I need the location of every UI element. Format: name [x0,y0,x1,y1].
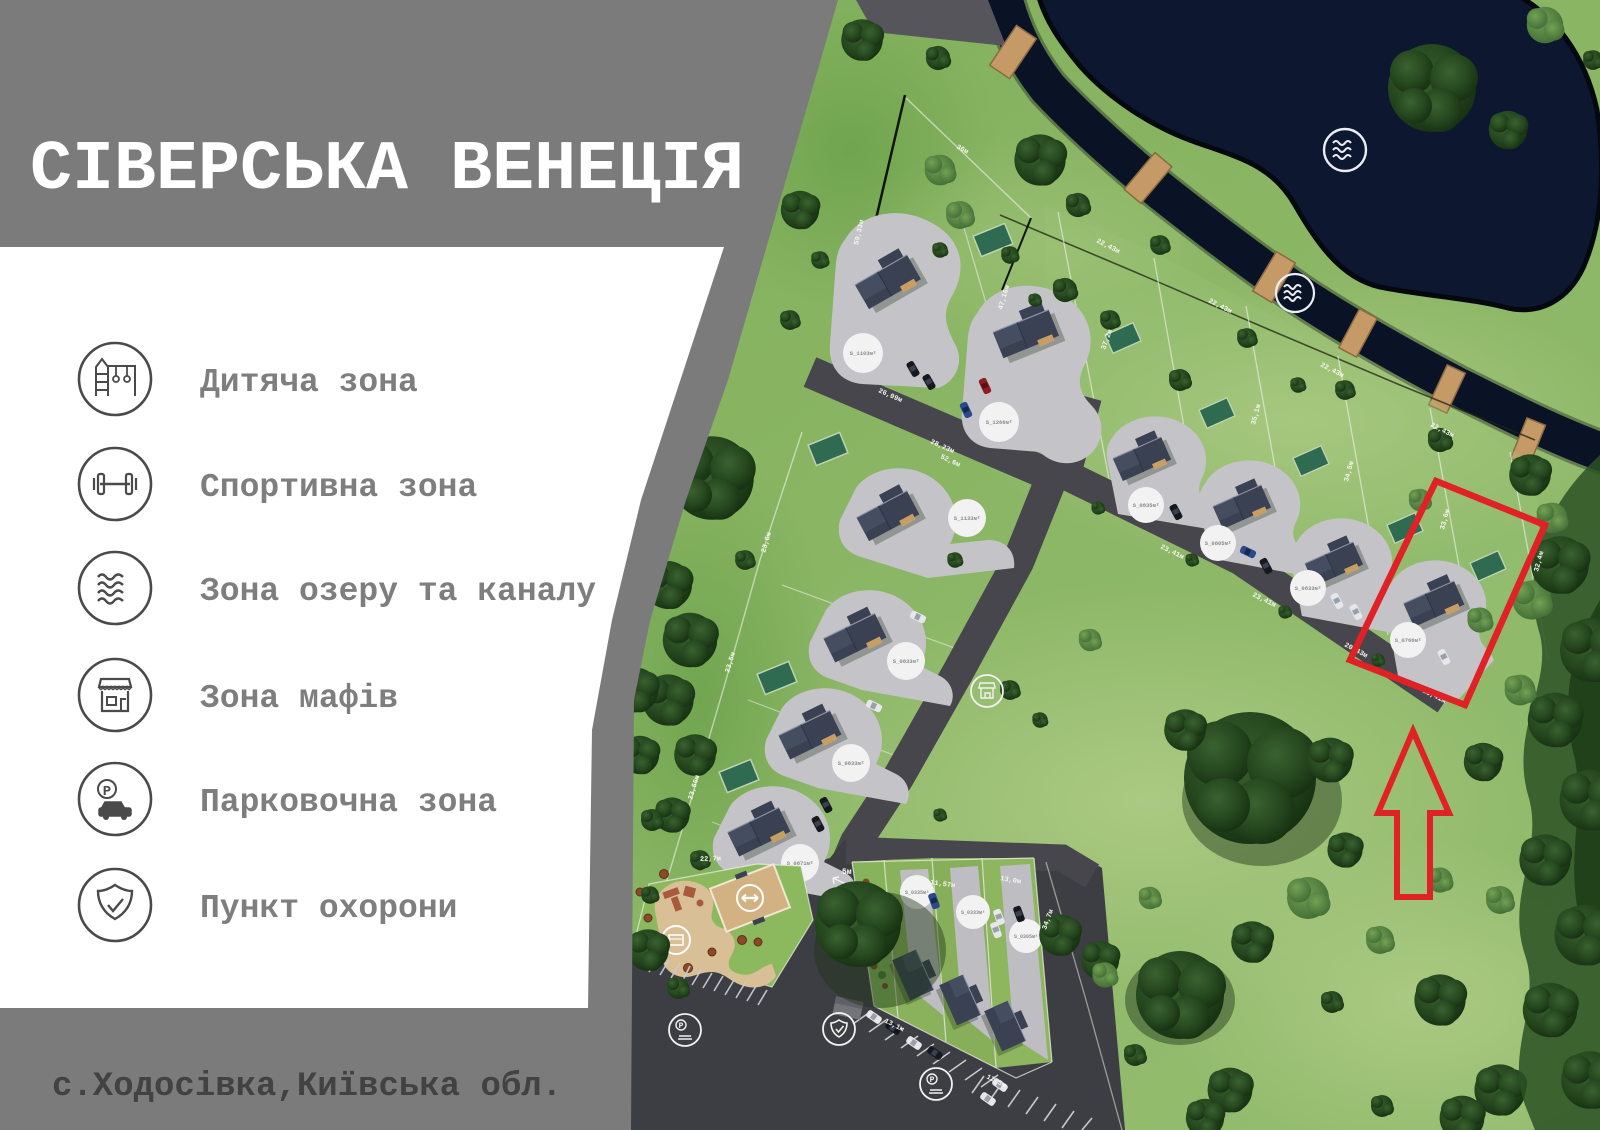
svg-text:S_0833м²: S_0833м² [838,760,864,767]
svg-text:S_0805м²: S_0805м² [1205,540,1231,547]
svg-text:Зона мафів: Зона мафів [200,680,398,717]
svg-text:S_0305м²: S_0305м² [1014,934,1038,940]
svg-text:Спортивна зона: Спортивна зона [200,469,477,506]
svg-text:S_1103м²: S_1103м² [850,350,876,357]
svg-text:S_1266м²: S_1266м² [986,419,1012,426]
svg-text:Пункт охорони: Пункт охорони [200,890,457,927]
svg-text:Парковочна зона: Парковочна зона [200,784,497,821]
svg-text:S_0833м²: S_0833м² [893,658,919,665]
svg-text:P: P [103,784,111,800]
svg-text:S_0833м²: S_0833м² [1295,585,1321,592]
svg-text:P: P [930,1076,935,1085]
svg-text:с.Ходосівка,Київська обл.: с.Ходосівка,Київська обл. [52,1068,562,1106]
svg-text:S_0835м²: S_0835м² [1133,502,1159,509]
svg-text:5м: 5м [842,868,852,877]
svg-text:S_1133м²: S_1133м² [954,515,980,522]
svg-text:S_0766м²: S_0766м² [1395,637,1421,644]
svg-text:Дитяча зона: Дитяча зона [200,364,418,401]
svg-text:S_0333м²: S_0333м² [961,910,985,916]
svg-text:Зона озеру та каналу: Зона озеру та каналу [200,573,596,610]
svg-text:СІВЕРСЬКА ВЕНЕЦІЯ: СІВЕРСЬКА ВЕНЕЦІЯ [30,131,744,210]
svg-text:P: P [679,1022,684,1031]
svg-text:22,7м: 22,7м [700,855,721,864]
svg-text:S_0335м²: S_0335м² [905,890,929,896]
